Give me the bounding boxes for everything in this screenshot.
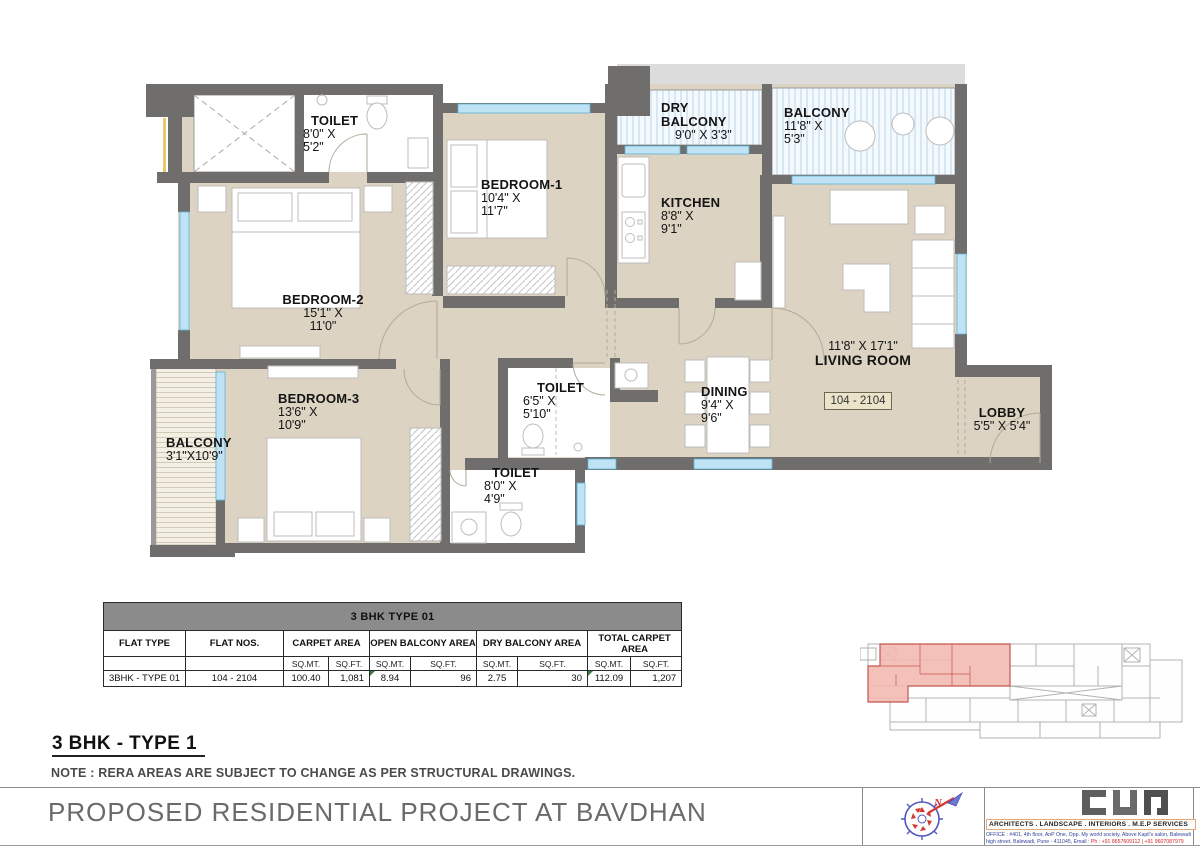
label-balcony-tr: BALCONY 11'8" X 5'3" — [784, 106, 850, 146]
label-dry-balcony: DRY BALCONY 9'0" X 3'3" — [661, 101, 732, 142]
footer-cell-divider — [984, 787, 985, 845]
cell-flat-type: 3BHK - TYPE 01 — [104, 671, 186, 687]
sub-sqft: SQ.FT. — [518, 657, 588, 671]
trim-accent — [163, 118, 166, 172]
cell-open-sqft: 96 — [411, 671, 477, 687]
project-title: PROPOSED RESIDENTIAL PROJECT AT BAVDHAN — [48, 797, 707, 828]
label-bedroom3: BEDROOM-3 13'6" X 10'9" — [278, 392, 359, 432]
drawing-sheet: TOILET 8'0" X 5'2" BEDROOM-1 10'4" X 11'… — [0, 0, 1200, 849]
cell-flag — [370, 671, 375, 676]
sub-sqmt: SQ.MT. — [284, 657, 329, 671]
footer-cell-divider — [862, 787, 863, 845]
office-address: OFFICE : #401, 4th floor, AnP One, Opp. … — [986, 832, 1192, 845]
note-line: NOTE : RERA AREAS ARE SUBJECT TO CHANGE … — [51, 766, 575, 780]
label-toilet-mid: TOILET 6'5" X 5'10" — [523, 381, 584, 421]
col-flat-nos: FLAT NOS. — [186, 631, 284, 657]
services-line: ARCHITECTS . LANDSCAPE . INTERIORS . M.E… — [986, 819, 1196, 830]
area-table: 3 BHK TYPE 01 FLAT TYPE FLAT NOS. CARPET… — [103, 602, 682, 687]
key-plan — [860, 626, 1195, 748]
cell-flat-nos: 104 - 2104 — [186, 671, 284, 687]
chajja-band — [617, 64, 965, 84]
col-carpet-area: CARPET AREA — [284, 631, 370, 657]
company-logo — [1082, 789, 1172, 818]
label-living: 11'8" X 17'1" LIVING ROOM — [815, 340, 911, 368]
label-balcony-left: BALCONY 3'1"X10'9" — [166, 436, 232, 463]
sub-sqmt: SQ.MT. — [588, 657, 631, 671]
label-dining: DINING 9'4" X 9'6" — [701, 385, 748, 425]
col-dry-balcony-area: DRY BALCONY AREA — [477, 631, 588, 657]
cell-carpet-sqft: 1,081 — [329, 671, 370, 687]
footer-cell-divider — [1193, 787, 1194, 845]
cell-dry-sqmt: 2.75 — [477, 671, 518, 687]
footer-divider — [0, 787, 1200, 788]
cell-flag — [588, 671, 593, 676]
sub-sqft: SQ.FT. — [411, 657, 477, 671]
table-title: 3 BHK TYPE 01 — [104, 603, 682, 631]
sheet-bottom-line — [0, 845, 1200, 846]
label-toilet-top: TOILET 8'0" X 5'2" — [303, 114, 358, 154]
table-row: 3BHK - TYPE 01 104 - 2104 100.40 1,081 8… — [104, 671, 682, 687]
cell-carpet-sqmt: 100.40 — [284, 671, 329, 687]
sub-sqmt: SQ.MT. — [477, 657, 518, 671]
label-toilet-bottom: TOILET 8'0" X 4'9" — [484, 466, 539, 506]
compass-icon: N — [878, 789, 978, 843]
label-bedroom2: BEDROOM-2 15'1" X 11'0" — [282, 293, 363, 333]
office-phone: Ph : +91 8657609112 | +91 9607087979 — [1091, 839, 1184, 845]
svg-text:N: N — [933, 797, 943, 809]
label-lobby: LOBBY 5'5" X 5'4" — [974, 406, 1031, 433]
cell-dry-sqft: 30 — [518, 671, 588, 687]
type-title: 3 BHK - TYPE 1 — [52, 733, 205, 757]
cell-total-sqmt: 112.09 — [588, 671, 631, 687]
sub-sqft: SQ.FT. — [631, 657, 682, 671]
cell-open-sqmt: 8.94 — [370, 671, 411, 687]
col-open-balcony-area: OPEN BALCONY AREA — [370, 631, 477, 657]
label-kitchen: KITCHEN 8'8" X 9'1" — [661, 196, 720, 236]
col-flat-type: FLAT TYPE — [104, 631, 186, 657]
cell-total-sqft: 1,207 — [631, 671, 682, 687]
col-total-carpet-area: TOTAL CARPET AREA — [588, 631, 682, 657]
sub-sqmt: SQ.MT. — [370, 657, 411, 671]
unit-number-range: 104 - 2104 — [824, 392, 892, 410]
label-bedroom1: BEDROOM-1 10'4" X 11'7" — [481, 178, 562, 218]
sub-sqft: SQ.FT. — [329, 657, 370, 671]
